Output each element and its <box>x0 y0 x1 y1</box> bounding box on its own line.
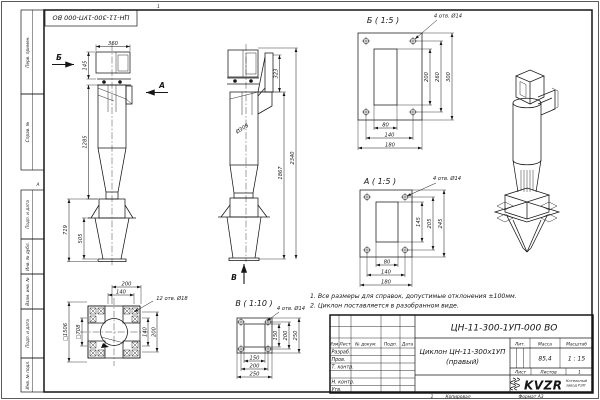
base-plan-view: 12 отв. Ø18 200 140 140 200 □708 □1506 <box>63 281 188 366</box>
svg-text:250: 250 <box>293 330 299 341</box>
svg-text:200: 200 <box>151 326 157 337</box>
side-view: Б А 360 145 1285 719 505 <box>52 41 168 266</box>
margin-field-label: Подп. и дата <box>25 200 30 229</box>
svg-text:200: 200 <box>250 363 261 369</box>
detail-a-title: А ( 1:5 ) <box>363 177 396 186</box>
svg-text:1867: 1867 <box>278 166 284 180</box>
zone-mark-bottom: 1 <box>431 394 434 400</box>
svg-text:245: 245 <box>438 218 444 229</box>
dim-top-width: 360 <box>96 41 130 51</box>
dim-diameter-label: Ø308 <box>234 122 251 136</box>
dim-b-holes-w: 140 <box>366 115 413 140</box>
margin-field-label: Перв. примен. <box>25 36 30 67</box>
svg-text:140: 140 <box>142 326 148 337</box>
zone-mark-top: 1 <box>157 4 160 10</box>
row-tcontrol: Т. контр. <box>332 365 354 371</box>
margin-field-label: Подп. и дата <box>25 319 30 348</box>
title-block: ЦН-11-300-1УП-000 ВО Циклон ЦН-11-300х1У… <box>329 315 593 393</box>
bottom-margin: 1 Копировал Формат А3 <box>431 394 544 400</box>
view-direction-b: Б <box>52 53 74 65</box>
svg-text:300: 300 <box>446 71 452 82</box>
svg-text:1285: 1285 <box>83 135 89 149</box>
col-doc: № докум. <box>354 342 377 348</box>
scale-value: 1 : 15 <box>568 356 585 363</box>
detail-a-holes-note: 4 отв. Ø14 <box>433 175 461 182</box>
dim-b-opening-h: 200 <box>397 49 432 105</box>
svg-text:200: 200 <box>424 71 430 82</box>
margin-field-label: Инв. № подл. <box>25 361 30 390</box>
col-izm: Изм. <box>329 342 339 348</box>
coil-icon <box>511 378 520 390</box>
format-label: Формат А3 <box>518 394 543 400</box>
margin-field-label: Справ. № <box>25 121 30 142</box>
sheet-frame: 1 А <box>2 2 599 399</box>
svg-text:□708: □708 <box>76 324 82 340</box>
svg-text:260: 260 <box>435 71 441 82</box>
row-developed: Разраб. <box>332 350 351 356</box>
dim-body-height: 1285 <box>83 85 98 199</box>
svg-text:205: 205 <box>427 218 433 229</box>
company-logo: KVZR Котельный завод РЭП <box>511 378 588 393</box>
svg-text:180: 180 <box>385 142 396 148</box>
view-direction-v: В <box>231 264 244 284</box>
dim-total-height: 2340 <box>258 48 298 259</box>
svg-text:140: 140 <box>116 289 127 295</box>
col-list: Лист <box>338 342 351 348</box>
detail-b-title: Б ( 1:5 ) <box>367 16 399 25</box>
svg-text:505: 505 <box>78 233 84 244</box>
col-sign: Подп. <box>384 342 397 348</box>
base-holes-note: 12 отв. Ø18 <box>156 295 188 302</box>
part-name: Циклон ЦН-11-300х1УП <box>420 348 507 356</box>
top-stamp: ЦН-11-300-1УП-000 ВО <box>45 10 137 26</box>
svg-text:80: 80 <box>382 122 389 128</box>
margin-field-label: Инв. № дубл. <box>25 242 30 271</box>
svg-text:719: 719 <box>63 225 69 235</box>
dim-a-opening-w: 80 <box>376 242 398 267</box>
logo-text: KVZR <box>524 379 563 393</box>
copied-label: Копировал <box>445 394 470 400</box>
svg-text:А: А <box>158 81 165 90</box>
lit-label: Лит. <box>514 342 525 348</box>
stamp-designation: ЦН-11-300-1УП-000 ВО <box>52 14 129 22</box>
dim-inlet-flange: 323 <box>273 55 282 92</box>
mass-value: 85,4 <box>538 356 552 363</box>
detail-b-holes-note: 4 отв. Ø14 <box>434 13 462 20</box>
dim-v-opening-w: 150 <box>244 347 265 363</box>
svg-text:200: 200 <box>122 281 133 287</box>
dim-inlet-height: 145 <box>83 52 96 79</box>
sheets-value: 1 <box>578 370 581 376</box>
note-line: 2. Циклон поставляется в разобранном вид… <box>310 302 459 310</box>
front-view: Ø308 В 323 1867 2340 <box>218 44 298 284</box>
logo-subtext: Котельный <box>566 379 588 383</box>
row-ncontrol: Н. контр. <box>332 380 355 386</box>
part-name: (правый) <box>446 358 479 366</box>
detail-a-view: А ( 1:5 ) 4 отв. Ø14 145 205 245 80 140 … <box>360 175 461 287</box>
dim-base-right-140: 140 <box>142 318 150 346</box>
detail-v-view: В ( 1:10 ) 4 отв. Ø14 150 200 250 150 20… <box>235 299 305 379</box>
row-checked: Пров. <box>332 357 346 363</box>
mass-label: Масса <box>538 342 552 348</box>
svg-text:2340: 2340 <box>290 151 296 165</box>
dim-a-opening-h: 145 <box>398 202 424 242</box>
dim-b-opening-w: 80 <box>374 105 397 130</box>
detail-b-view: Б ( 1:5 ) 4 отв. Ø14 200 260 300 80 140 … <box>358 13 462 151</box>
notes: 1. Все размеры для справок, допустимые о… <box>310 293 517 310</box>
scale-label: Масштаб <box>566 342 587 348</box>
svg-text:145: 145 <box>416 216 422 227</box>
dim-stand-cone: 505 <box>78 218 97 259</box>
zone-mark-a: А <box>35 182 39 188</box>
svg-text:200: 200 <box>283 330 289 341</box>
isometric-view <box>495 70 559 252</box>
svg-text:140: 140 <box>381 269 392 275</box>
svg-text:Б: Б <box>56 53 62 62</box>
detail-v-title: В ( 1:10 ) <box>235 299 272 308</box>
sheets-label: Листов <box>539 370 557 376</box>
svg-text:323: 323 <box>274 69 280 79</box>
row-approved: Утв. <box>332 387 342 393</box>
view-direction-a: А <box>146 81 168 93</box>
svg-text:250: 250 <box>250 371 261 377</box>
margin-field-label: Взам. инв. № <box>25 277 30 306</box>
dim-v-opening-h: 150 <box>265 324 281 347</box>
svg-text:145: 145 <box>83 60 89 71</box>
drawing-sheet: 1 А Перв. примен. Справ. № Подп. и дата … <box>0 0 600 400</box>
svg-text:150: 150 <box>273 330 279 341</box>
dim-height-to-inlet: 1867 <box>259 92 286 259</box>
detail-v-holes-note: 4 отв. Ø14 <box>277 305 305 312</box>
sheet-label: Лист <box>514 370 527 376</box>
margin-column: Перв. примен. Справ. № Подп. и дата Инв.… <box>21 10 44 392</box>
svg-text:80: 80 <box>384 259 391 265</box>
svg-text:360: 360 <box>108 41 119 47</box>
dim-stand-height: 719 <box>63 199 98 262</box>
drawing-svg: 1 А Перв. примен. Справ. № Подп. и дата … <box>0 0 600 400</box>
flange-holes <box>237 318 272 353</box>
logo-subtext: завод РЭП <box>566 384 586 388</box>
svg-text:180: 180 <box>381 279 392 285</box>
note-line: 1. Все размеры для справок, допустимые о… <box>310 293 517 300</box>
svg-text:В: В <box>231 273 237 282</box>
svg-text:150: 150 <box>250 355 261 361</box>
col-date: Дата <box>401 342 414 348</box>
svg-text:□1506: □1506 <box>63 322 69 341</box>
svg-text:140: 140 <box>385 132 396 138</box>
designation: ЦН-11-300-1УП-000 ВО <box>451 324 558 334</box>
